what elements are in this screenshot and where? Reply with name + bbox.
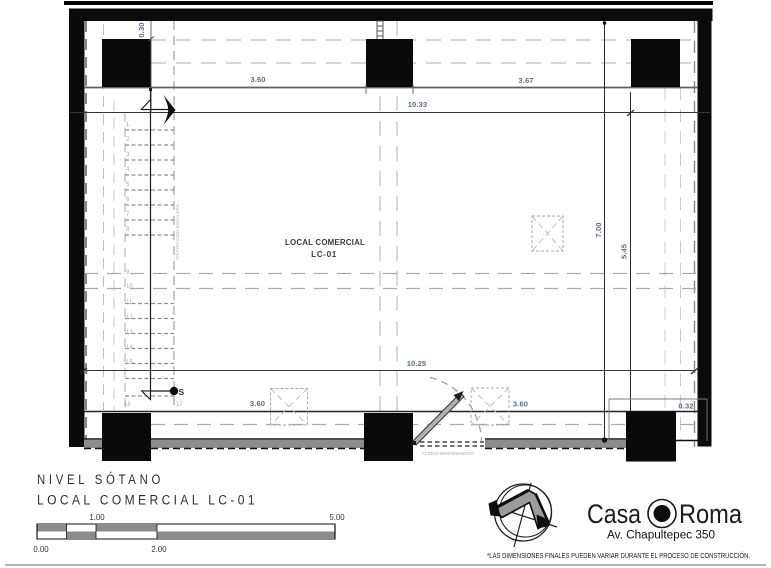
- svg-text:16: 16: [124, 402, 131, 408]
- svg-text:10.33: 10.33: [408, 100, 428, 109]
- svg-text:NIVEL SÓTANO: NIVEL SÓTANO: [37, 472, 164, 487]
- svg-text:LOCAL COMERCIAL: LOCAL COMERCIAL: [285, 238, 365, 247]
- svg-text:S: S: [179, 387, 185, 397]
- svg-text:Roma: Roma: [679, 499, 743, 529]
- svg-text:3.60: 3.60: [250, 75, 265, 84]
- svg-text:3.67: 3.67: [518, 76, 533, 85]
- svg-text:5.45: 5.45: [620, 243, 629, 259]
- svg-text:LC-01: LC-01: [311, 250, 337, 259]
- svg-text:7.00: 7.00: [594, 222, 603, 237]
- svg-text:1.00: 1.00: [89, 513, 105, 522]
- svg-text:PROYECCION ESCALERA: PROYECCION ESCALERA: [175, 204, 180, 260]
- svg-text:0.32: 0.32: [678, 402, 693, 411]
- svg-text:0.00: 0.00: [33, 545, 49, 554]
- svg-text:10.25: 10.25: [407, 359, 427, 368]
- svg-text:ACCESO MANTENIMIENTO: ACCESO MANTENIMIENTO: [422, 451, 475, 456]
- svg-text:2.00: 2.00: [151, 545, 167, 554]
- svg-text:5.00: 5.00: [329, 513, 345, 522]
- svg-text:Av. Chapultepec 350: Av. Chapultepec 350: [607, 530, 715, 542]
- svg-text:17: 17: [176, 402, 183, 408]
- svg-text:*LAS DIMENSIONES FINALES PUEDE: *LAS DIMENSIONES FINALES PUEDEN VARIAR D…: [487, 551, 750, 560]
- svg-text:15: 15: [126, 360, 133, 366]
- svg-text:3.60: 3.60: [513, 400, 528, 409]
- svg-text:Casa: Casa: [587, 499, 642, 529]
- svg-text:0.30: 0.30: [137, 22, 146, 37]
- svg-text:LOCAL COMERCIAL LC-01: LOCAL COMERCIAL LC-01: [37, 493, 258, 508]
- svg-text:13: 13: [126, 330, 133, 336]
- svg-text:11: 11: [126, 300, 133, 306]
- svg-text:12: 12: [126, 315, 133, 321]
- svg-text:14: 14: [126, 345, 133, 351]
- svg-text:3.60: 3.60: [250, 399, 265, 408]
- svg-text:10: 10: [126, 284, 133, 290]
